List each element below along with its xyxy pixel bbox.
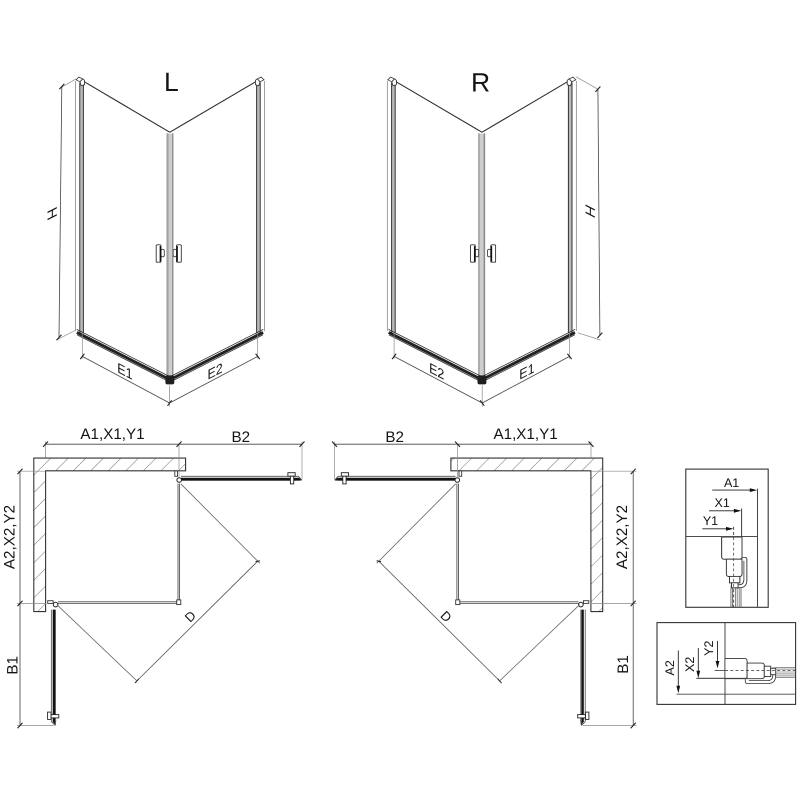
svg-text:B2: B2	[385, 429, 404, 446]
svg-text:H: H	[582, 201, 597, 220]
svg-text:X1: X1	[715, 496, 730, 510]
svg-text:B1: B1	[4, 656, 21, 675]
svg-text:X2: X2	[683, 657, 697, 672]
svg-text:A2,X2,Y2: A2,X2,Y2	[614, 505, 631, 569]
svg-text:A1: A1	[724, 476, 739, 490]
svg-text:D: D	[438, 608, 455, 625]
svg-text:A2,X2,Y2: A2,X2,Y2	[1, 505, 18, 569]
svg-text:B2: B2	[232, 429, 251, 446]
svg-text:D: D	[182, 608, 199, 625]
svg-text:Y2: Y2	[702, 641, 716, 656]
svg-text:H: H	[44, 205, 59, 224]
svg-text:A1,X1,Y1: A1,X1,Y1	[494, 426, 558, 443]
svg-text:L: L	[164, 67, 179, 97]
svg-text:Y1: Y1	[703, 514, 718, 528]
svg-text:A2: A2	[663, 660, 677, 675]
svg-text:A1,X1,Y1: A1,X1,Y1	[80, 426, 144, 443]
svg-text:R: R	[471, 68, 490, 98]
svg-text:B1: B1	[615, 655, 632, 674]
